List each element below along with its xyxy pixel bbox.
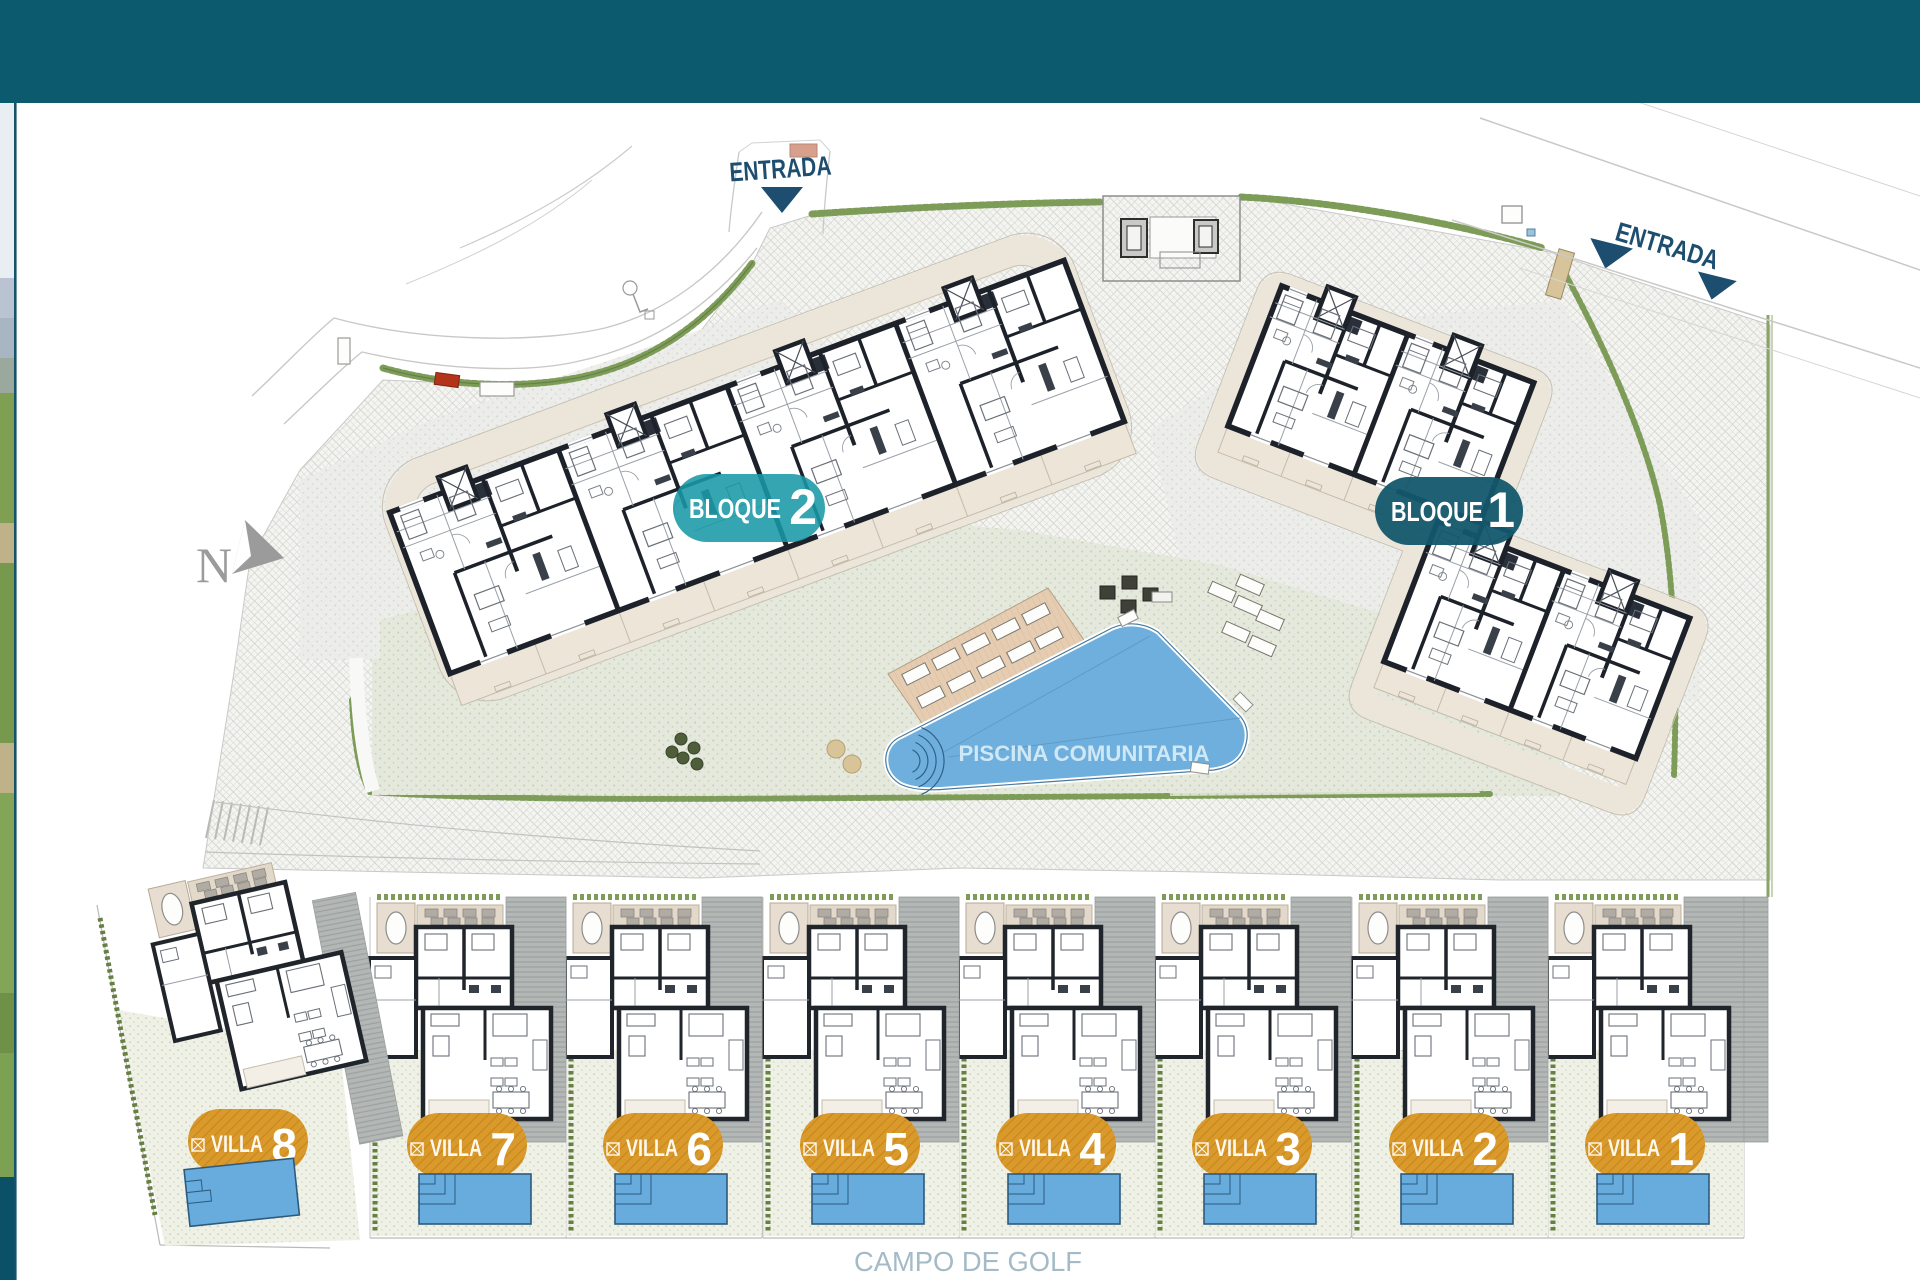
svg-text:VILLA: VILLA <box>1019 1135 1071 1162</box>
svg-text:PISCINA COMUNITARIA: PISCINA COMUNITARIA <box>959 741 1210 766</box>
svg-text:VILLA: VILLA <box>823 1135 875 1162</box>
svg-text:3: 3 <box>1275 1123 1301 1175</box>
svg-text:VILLA: VILLA <box>1215 1135 1267 1162</box>
svg-text:VILLA: VILLA <box>626 1135 678 1162</box>
svg-text:CAMPO DE GOLF: CAMPO DE GOLF <box>854 1246 1082 1277</box>
svg-text:2: 2 <box>789 479 817 535</box>
svg-text:BLOQUE: BLOQUE <box>689 493 781 524</box>
svg-text:5: 5 <box>883 1123 909 1175</box>
svg-text:BLOQUE: BLOQUE <box>1391 496 1483 527</box>
svg-text:VILLA: VILLA <box>1608 1135 1660 1162</box>
svg-text:VILLA: VILLA <box>430 1135 482 1162</box>
svg-text:VILLA: VILLA <box>1412 1135 1464 1162</box>
svg-text:2: 2 <box>1472 1123 1498 1175</box>
svg-text:VILLA: VILLA <box>211 1131 263 1158</box>
svg-text:4: 4 <box>1079 1123 1105 1175</box>
svg-text:1: 1 <box>1487 482 1515 538</box>
svg-text:1: 1 <box>1668 1123 1694 1175</box>
svg-text:6: 6 <box>686 1123 712 1175</box>
svg-text:7: 7 <box>490 1123 516 1175</box>
svg-text:N: N <box>196 537 232 593</box>
